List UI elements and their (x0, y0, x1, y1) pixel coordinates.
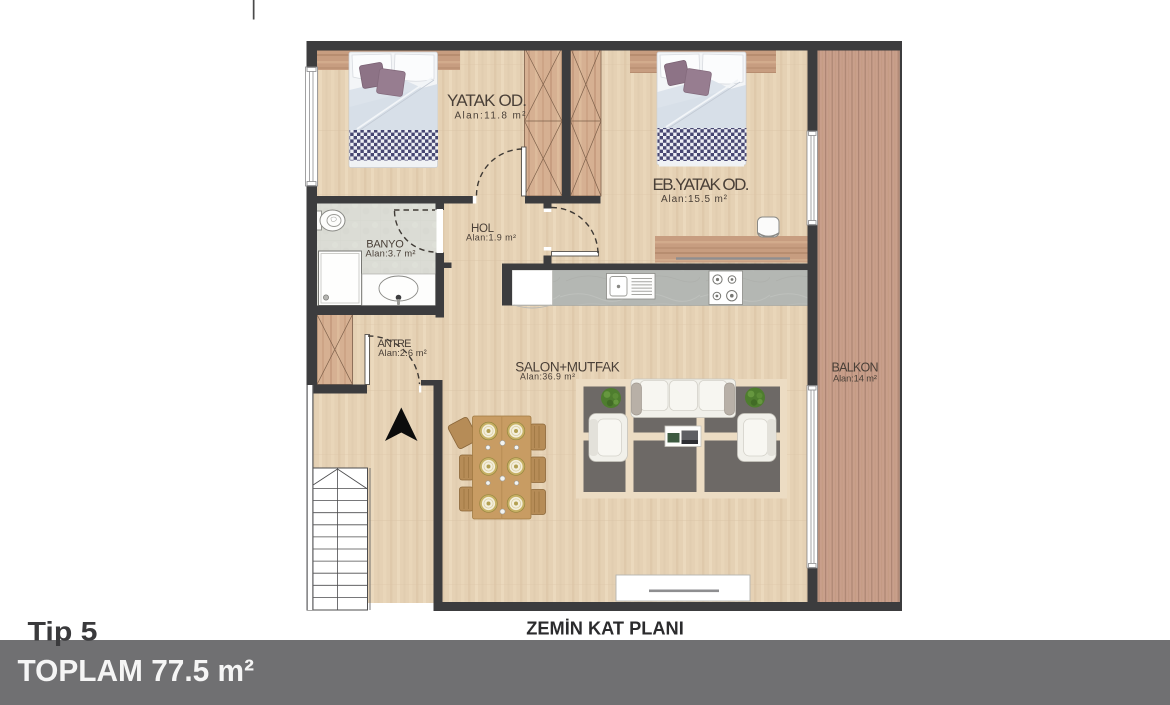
svg-text:Alan:2.6 m²: Alan:2.6 m² (378, 348, 427, 358)
svg-text:Alan:3.7 m²: Alan:3.7 m² (366, 249, 416, 259)
svg-text:BALKON: BALKON (832, 361, 879, 375)
svg-text:Alan:15.5 m²: Alan:15.5 m² (661, 194, 728, 205)
svg-text:Alan:11.8 m²: Alan:11.8 m² (455, 111, 527, 122)
svg-text:ZEMİN KAT PLANI: ZEMİN KAT PLANI (526, 619, 684, 639)
svg-text:Tip 5: Tip 5 (28, 617, 98, 647)
svg-text:Alan:36.9 m²: Alan:36.9 m² (520, 372, 575, 382)
svg-text:YATAK OD.: YATAK OD. (447, 91, 527, 110)
svg-text:Alan:14 m²: Alan:14 m² (833, 374, 877, 384)
svg-text:EB.YATAK OD.: EB.YATAK OD. (653, 175, 750, 194)
svg-text:Alan:1.9 m²: Alan:1.9 m² (466, 233, 516, 243)
svg-text:TOPLAM 77.5 m²: TOPLAM 77.5 m² (18, 654, 255, 688)
